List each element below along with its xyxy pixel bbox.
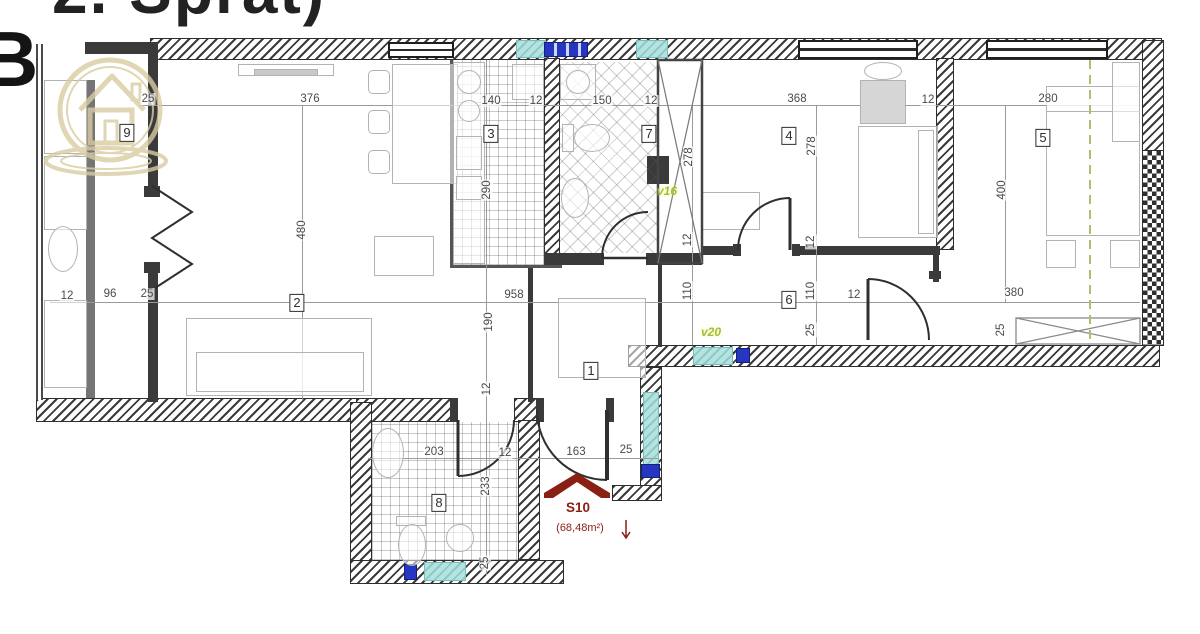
dimension-label: 380 [1003, 287, 1024, 299]
dimension-label: 12 [805, 235, 817, 250]
dimension-label: 25 [140, 288, 155, 300]
unit-id-label: S10 [551, 500, 605, 515]
dimension-label: 958 [503, 289, 524, 301]
dimension-label: 278 [683, 146, 695, 167]
dimension-label: 25 [619, 444, 634, 456]
dimension-label: 12 [921, 94, 936, 106]
folding-door-zigzag [152, 186, 192, 290]
dimension-label: 25 [479, 556, 491, 571]
dimension-label: 25 [995, 323, 1007, 338]
room-number: 9 [119, 124, 134, 142]
room-number: 5 [1035, 129, 1050, 147]
dimension-label: 480 [296, 219, 308, 240]
floorplan-drawing: 2. Sprat) B [0, 0, 1200, 634]
entrance-arrow-icon [622, 520, 630, 538]
room-number: 8 [431, 494, 446, 512]
floorplan-page: 2. Sprat) B [0, 0, 1200, 634]
room-number: 3 [483, 125, 498, 143]
room-number: 7 [641, 125, 656, 143]
dimension-label: 280 [1037, 93, 1058, 105]
dimension-label: 12 [682, 233, 694, 248]
room-number: 4 [781, 127, 796, 145]
dimension-label: 368 [786, 93, 807, 105]
dimension-label: 12 [498, 447, 513, 459]
dimension-label: 12 [60, 290, 75, 302]
dimension-label: 12 [644, 95, 659, 107]
dimension-label: 376 [299, 93, 320, 105]
dimension-label: 12 [847, 289, 862, 301]
vent-note: v20 [701, 325, 721, 339]
room-number: 2 [289, 294, 304, 312]
dimension-label: 203 [423, 446, 444, 458]
dimension-label: 12 [481, 382, 493, 397]
dimension-label: 163 [565, 446, 586, 458]
dimension-label: 96 [103, 288, 118, 300]
dimension-label: 290 [481, 179, 493, 200]
vent-note: v16 [657, 184, 677, 198]
dimension-label: 400 [996, 179, 1008, 200]
dimension-label: 150 [591, 95, 612, 107]
room-number: 6 [781, 291, 796, 309]
unit-area-label: (68,48m²) [538, 522, 622, 534]
dimension-label: 25 [805, 323, 817, 338]
dimension-label: 140 [480, 95, 501, 107]
crossed-box [1016, 318, 1140, 344]
vent-shaft [658, 60, 702, 263]
entrance-roof-icon [544, 473, 610, 498]
dimension-label: 25 [141, 93, 156, 105]
dimension-label: 190 [483, 311, 495, 332]
house-logo-watermark [46, 60, 166, 174]
dimension-label: 12 [529, 95, 544, 107]
room-number: 1 [583, 362, 598, 380]
dimension-label: 233 [480, 475, 492, 496]
dimension-label: 278 [806, 135, 818, 156]
dimension-label: 110 [682, 281, 694, 301]
dimension-label: 110 [805, 281, 817, 301]
